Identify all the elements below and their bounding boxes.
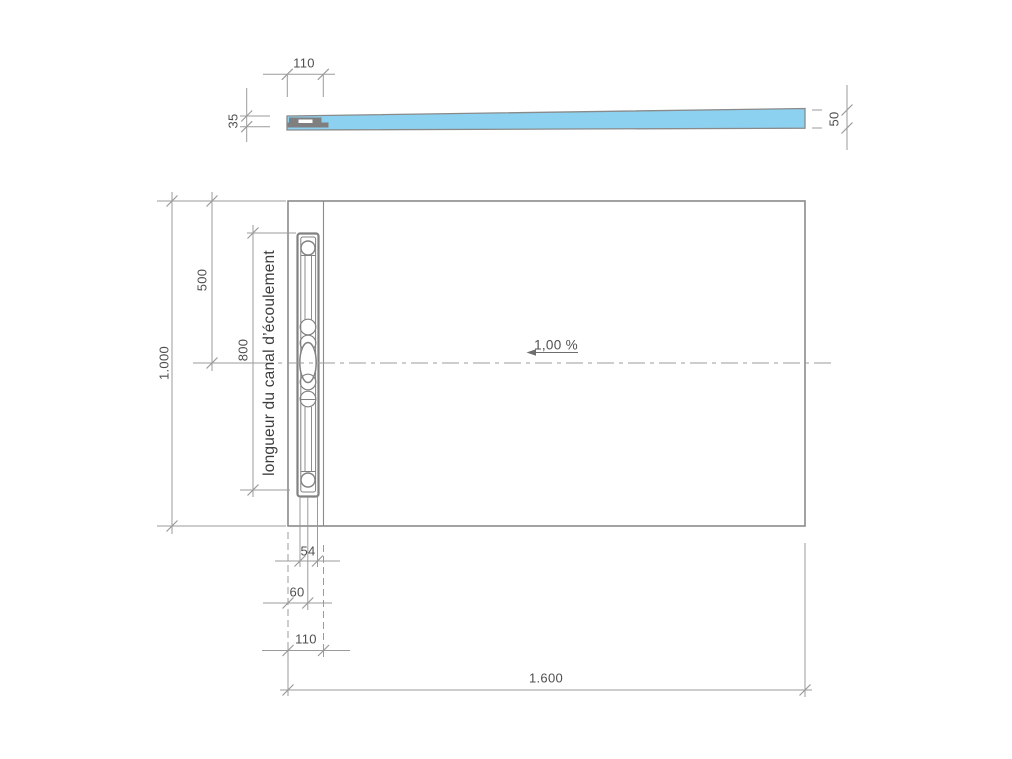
dim-edge-zone-bottom-label: 110: [295, 632, 317, 647]
dim-overall-width-label: 1.000: [157, 346, 172, 380]
dim-thickness-right-label: 50: [827, 111, 842, 126]
technical-drawing-canvas: 110 35 50 1.000 500 800 longueur du cana…: [0, 0, 1012, 759]
plan-bottom-dimensions: [262, 497, 812, 697]
dim-channel-length-label: 800: [236, 339, 251, 362]
dim-channel-outer-width-label: 60: [289, 585, 304, 600]
channel-length-text-label: longueur du canal d’écoulement: [261, 250, 279, 476]
plan-view: [193, 201, 831, 526]
slope-percentage-label: 1,00 %: [534, 338, 578, 353]
drawing-linework: [0, 0, 1012, 759]
section-view: [287, 109, 805, 131]
drain-channel-plan: [298, 234, 319, 497]
dim-channel-width-label: 54: [300, 544, 315, 559]
dim-channel-offset-label: 500: [195, 269, 210, 292]
dim-overall-length-label: 1.600: [529, 671, 563, 686]
dim-thickness-left-label: 35: [226, 113, 241, 128]
dim-edge-width-top-label: 110: [293, 56, 315, 71]
tray-section-shape: [287, 109, 805, 131]
